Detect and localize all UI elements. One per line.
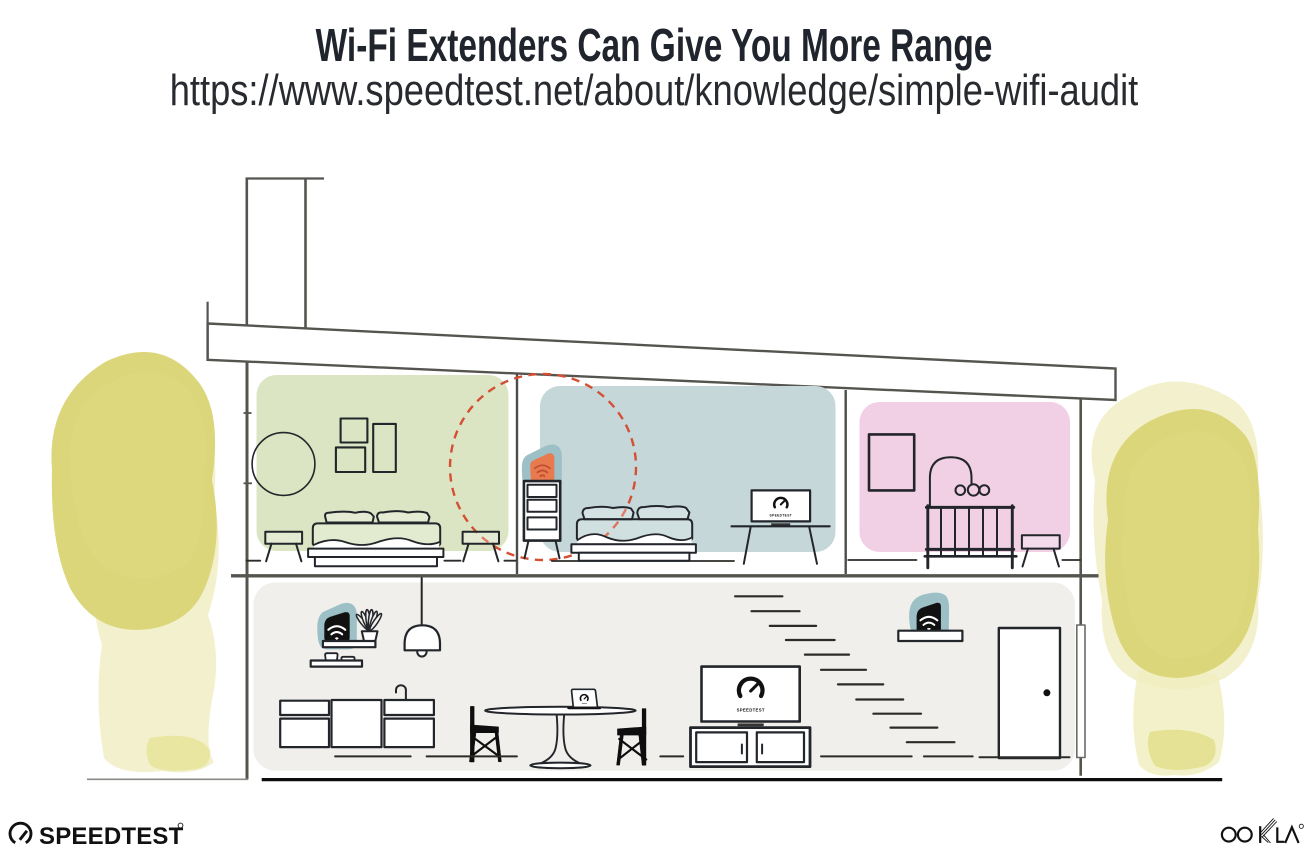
svg-text:SPEEDTEST: SPEEDTEST bbox=[39, 823, 184, 850]
svg-text:SPEEDTEST: SPEEDTEST bbox=[737, 708, 765, 713]
svg-text:SPEEDTEST: SPEEDTEST bbox=[770, 514, 793, 518]
